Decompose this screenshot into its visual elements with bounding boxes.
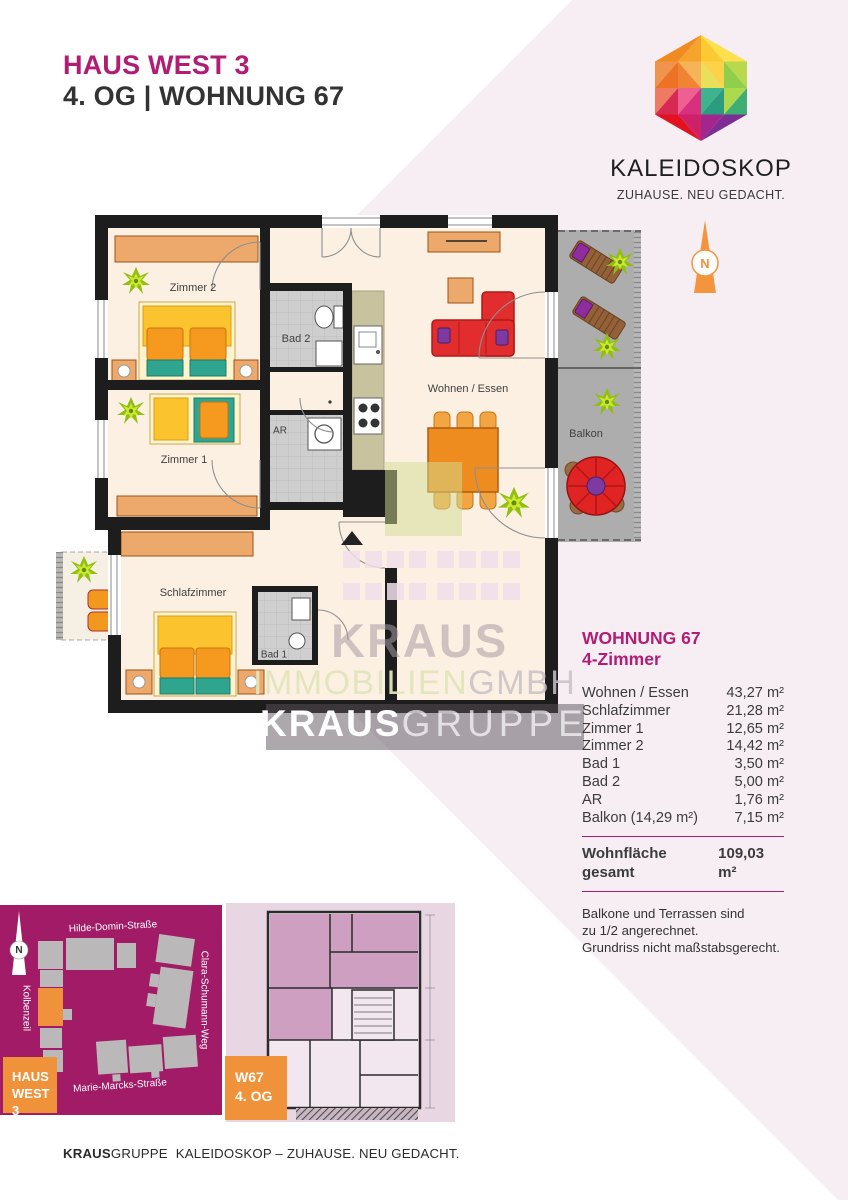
apartment-details: WOHNUNG 67 4-Zimmer Wohnen / Essen43,27 … [582,628,784,956]
house-title: HAUS WEST 3 [63,50,344,81]
table-row: Balkon (14,29 m²)7,15 m² [582,810,784,828]
logo-wordmark: KALEIDOSKOP [596,155,806,183]
watermark-kraus: KRAUS [331,613,508,668]
kitchen [352,291,384,470]
label-zimmer1: Zimmer 1 [161,454,207,466]
footer-line: KRAUSGRUPPEKALEIDOSKOP – ZUHAUSE. NEU GE… [63,1146,460,1161]
compass-letter: N [697,256,713,271]
watermark-gruppe-bold: KRAUS [260,703,402,744]
kaleidoskop-hexagon-icon [653,35,749,141]
label-balkon: Balkon [569,428,603,440]
watermark-krausgruppe: KRAUSGRUPPE [260,703,588,745]
highlighted-building [38,988,63,1026]
watermark-gruppe-light: GRUPPE [402,703,588,744]
table-row: Bad 25,00 m² [582,774,784,792]
haus-west3-badge: HAUS WEST 3 [3,1057,57,1113]
label-schlafzimmer: Schlafzimmer [160,587,227,599]
logo-tagline: ZUHAUSE. NEU GEDACHT. [596,188,806,202]
brand-logo: KALEIDOSKOP ZUHAUSE. NEU GEDACHT. [596,35,806,202]
label-bad2: Bad 2 [282,333,311,345]
unit-title: 4. OG | WOHNUNG 67 [63,81,344,112]
table-row: AR1,76 m² [582,792,784,810]
table-row: Zimmer 112,65 m² [582,721,784,739]
umbrella-icon [565,457,625,515]
label-ar: AR [273,426,287,437]
street-clara-schumann: Clara-Schumann-Weg [199,951,210,1050]
watermark-gmbh: GMBH [468,664,576,702]
site-map-compass-letter: N [12,945,26,956]
details-subtitle: 4-Zimmer [582,649,784,670]
w67-badge: W67 4. OG [225,1056,287,1120]
total-row: Wohnfläche gesamt109,03 m² [582,844,784,882]
watermark-immobilien: IMMOBILIEN [253,664,468,702]
balcony-main [558,230,641,542]
footnotes: Balkone und Terrassen sind zu 1/2 angere… [582,906,784,956]
table-row: Wohnen / Essen43,27 m² [582,685,784,703]
divider [582,891,784,892]
table-row: Zimmer 214,42 m² [582,738,784,756]
label-bad1: Bad 1 [261,650,287,661]
street-kolbenzeil: Kolbenzeil [21,985,32,1031]
details-title: WOHNUNG 67 [582,628,784,649]
label-zimmer2: Zimmer 2 [170,282,216,294]
room-area-table: Wohnen / Essen43,27 m² Schlafzimmer21,28… [582,685,784,827]
watermark-immobilien-gmbh: IMMOBILIENGMBH [253,664,576,703]
table-row: Bad 13,50 m² [582,756,784,774]
divider [582,836,784,837]
page-title: HAUS WEST 3 4. OG | WOHNUNG 67 [63,50,344,112]
table-row: Schlafzimmer21,28 m² [582,703,784,721]
label-wohnen-essen: Wohnen / Essen [428,383,509,395]
